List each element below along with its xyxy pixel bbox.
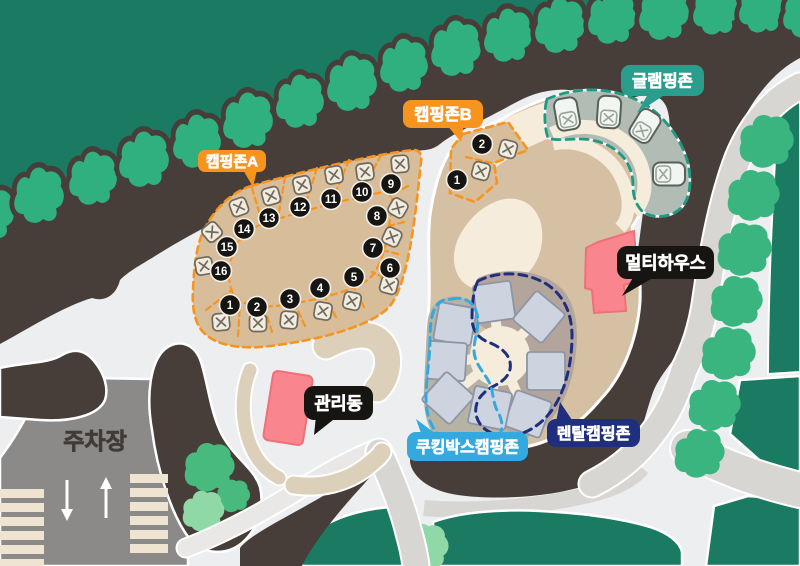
svg-text:11: 11 <box>325 194 338 206</box>
svg-text:2: 2 <box>479 139 485 151</box>
svg-text:2: 2 <box>254 302 260 314</box>
svg-text:14: 14 <box>238 224 251 236</box>
svg-text:15: 15 <box>221 242 234 254</box>
svg-text:주차장: 주차장 <box>63 428 126 454</box>
svg-text:1: 1 <box>454 175 461 187</box>
svg-text:쿠킹박스캠핑존: 쿠킹박스캠핑존 <box>416 437 519 456</box>
svg-text:글램핑존: 글램핑존 <box>632 71 693 90</box>
svg-text:6: 6 <box>387 263 393 275</box>
svg-text:캠핑존B: 캠핑존B <box>414 105 472 124</box>
svg-text:4: 4 <box>317 283 324 295</box>
svg-text:12: 12 <box>294 202 307 214</box>
svg-text:7: 7 <box>370 243 376 255</box>
svg-text:10: 10 <box>356 187 369 199</box>
svg-text:1: 1 <box>227 300 234 312</box>
svg-text:5: 5 <box>351 272 358 284</box>
svg-text:16: 16 <box>215 266 228 278</box>
svg-text:멀티하우스: 멀티하우스 <box>625 253 706 273</box>
svg-text:관리동: 관리동 <box>314 393 362 413</box>
svg-text:캠핑존A: 캠핑존A <box>206 152 258 170</box>
svg-text:13: 13 <box>263 213 276 225</box>
svg-text:3: 3 <box>287 294 293 306</box>
svg-text:8: 8 <box>374 211 381 223</box>
svg-text:렌탈캠핑존: 렌탈캠핑존 <box>557 425 631 443</box>
svg-text:9: 9 <box>388 179 394 191</box>
